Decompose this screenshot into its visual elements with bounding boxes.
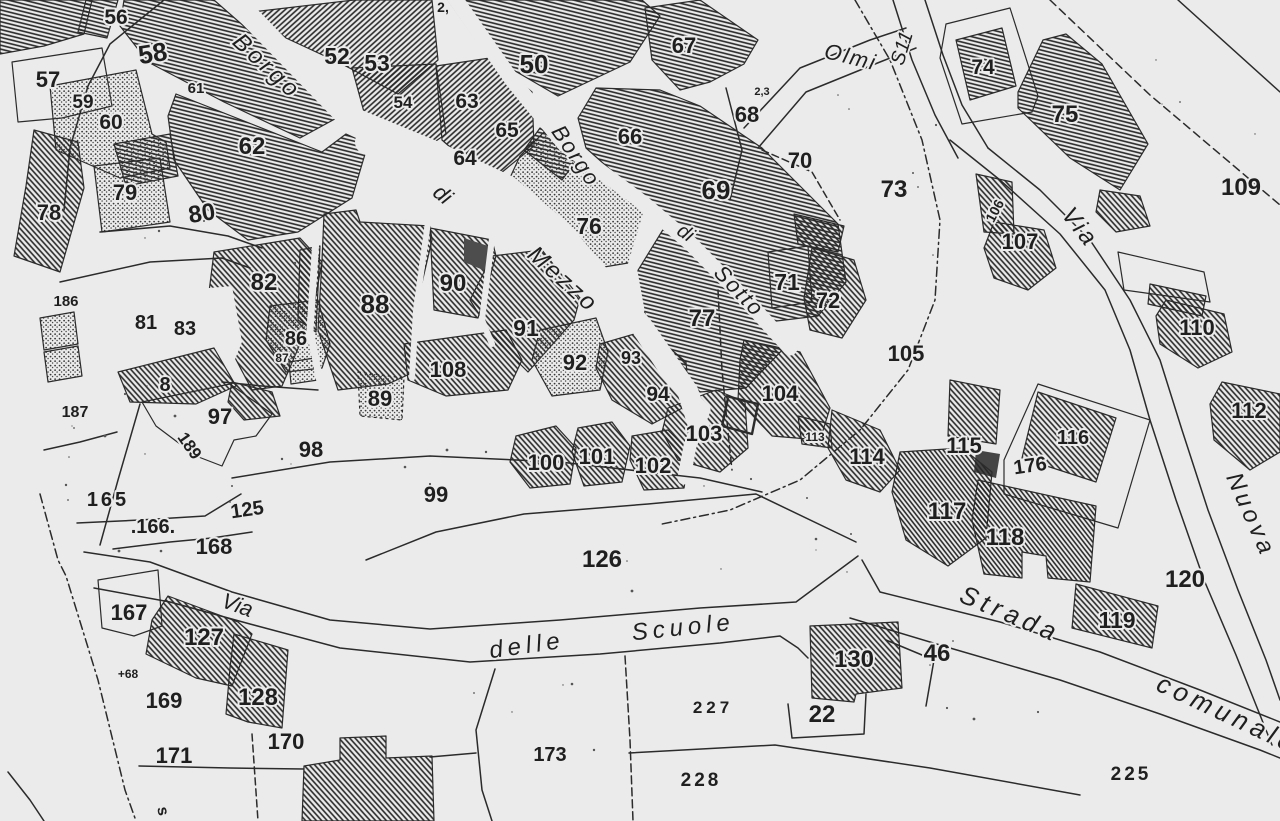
svg-text:75: 75 — [1052, 101, 1079, 128]
svg-text:130: 130 — [834, 646, 874, 673]
svg-text:2,3: 2,3 — [754, 86, 769, 98]
svg-text:91: 91 — [513, 315, 539, 341]
svg-text:168: 168 — [196, 534, 233, 559]
svg-text:110: 110 — [1179, 315, 1215, 340]
svg-text:78: 78 — [37, 200, 61, 225]
svg-text:186: 186 — [53, 293, 78, 310]
svg-text:101: 101 — [579, 444, 616, 469]
svg-text:58: 58 — [136, 36, 169, 70]
svg-text:62: 62 — [239, 133, 266, 160]
svg-text:100: 100 — [528, 450, 565, 475]
svg-text:88: 88 — [361, 289, 390, 319]
svg-text:97: 97 — [208, 404, 232, 429]
svg-text:57: 57 — [36, 67, 60, 92]
svg-text:170: 170 — [268, 729, 305, 754]
svg-text:77: 77 — [689, 305, 716, 332]
svg-text:82: 82 — [251, 269, 278, 296]
svg-text:116: 116 — [1057, 427, 1089, 449]
svg-text:114: 114 — [849, 444, 885, 469]
svg-text:128: 128 — [238, 684, 278, 711]
svg-text:104: 104 — [762, 381, 799, 406]
svg-text:98: 98 — [299, 437, 323, 462]
svg-text:187: 187 — [62, 404, 89, 421]
svg-text:81: 81 — [135, 312, 157, 334]
svg-text:60: 60 — [99, 111, 122, 134]
svg-text:56: 56 — [104, 6, 127, 29]
svg-text:165: 165 — [87, 489, 129, 511]
svg-text:59: 59 — [72, 92, 93, 113]
svg-text:80: 80 — [187, 198, 218, 229]
svg-text:119: 119 — [1098, 607, 1135, 633]
svg-text:112: 112 — [1231, 398, 1267, 423]
svg-text:113: 113 — [805, 430, 825, 444]
svg-text:99: 99 — [424, 482, 448, 507]
svg-text:68: 68 — [735, 102, 759, 127]
svg-text:22: 22 — [809, 701, 836, 728]
svg-text:.166.: .166. — [131, 516, 175, 538]
svg-text:107: 107 — [1002, 229, 1039, 254]
svg-text:120: 120 — [1165, 566, 1205, 593]
svg-text:228: 228 — [681, 770, 722, 791]
svg-text:76: 76 — [576, 213, 602, 239]
svg-text:109: 109 — [1221, 174, 1261, 201]
svg-text:102: 102 — [635, 453, 672, 478]
svg-text:61: 61 — [188, 80, 205, 97]
svg-text:89: 89 — [368, 386, 392, 411]
svg-text:73: 73 — [881, 176, 908, 203]
svg-text:126: 126 — [582, 546, 622, 573]
svg-text:65: 65 — [495, 119, 519, 142]
svg-text:69: 69 — [702, 175, 731, 205]
svg-text:92: 92 — [563, 350, 587, 375]
svg-text:176: 176 — [1012, 453, 1048, 479]
svg-text:127: 127 — [184, 624, 224, 651]
svg-text:83: 83 — [174, 318, 196, 340]
svg-text:169: 169 — [146, 688, 183, 713]
svg-text:50: 50 — [520, 49, 549, 79]
svg-text:93: 93 — [621, 348, 641, 368]
svg-text:63: 63 — [455, 90, 478, 113]
svg-text:87: 87 — [275, 351, 289, 365]
svg-text:115: 115 — [946, 433, 982, 458]
svg-text:86: 86 — [285, 328, 307, 350]
svg-text:66: 66 — [618, 124, 642, 149]
svg-text:54: 54 — [394, 93, 413, 112]
svg-text:72: 72 — [816, 288, 840, 313]
svg-text:52: 52 — [324, 43, 350, 69]
svg-text:46: 46 — [924, 640, 951, 667]
svg-text:173: 173 — [533, 744, 566, 766]
svg-text:79: 79 — [113, 180, 137, 205]
svg-text:227: 227 — [693, 698, 733, 717]
svg-text:103: 103 — [686, 421, 723, 446]
svg-text:+68: +68 — [118, 667, 139, 681]
svg-text:171: 171 — [156, 743, 193, 768]
svg-text:70: 70 — [788, 148, 812, 173]
svg-text:225: 225 — [1111, 764, 1152, 785]
svg-text:90: 90 — [440, 270, 467, 297]
svg-text:125: 125 — [229, 497, 265, 523]
svg-text:118: 118 — [986, 524, 1025, 551]
svg-text:64: 64 — [453, 147, 477, 170]
svg-text:53: 53 — [364, 50, 390, 76]
svg-text:8: 8 — [159, 374, 170, 396]
svg-text:108: 108 — [430, 357, 467, 382]
svg-text:67: 67 — [672, 33, 696, 58]
svg-text:105: 105 — [888, 341, 925, 366]
svg-text:2,: 2, — [437, 0, 449, 15]
svg-text:74: 74 — [971, 56, 995, 79]
svg-text:117: 117 — [928, 498, 967, 525]
svg-text:167: 167 — [111, 600, 148, 625]
svg-text:94: 94 — [646, 383, 670, 406]
svg-text:71: 71 — [774, 269, 800, 295]
